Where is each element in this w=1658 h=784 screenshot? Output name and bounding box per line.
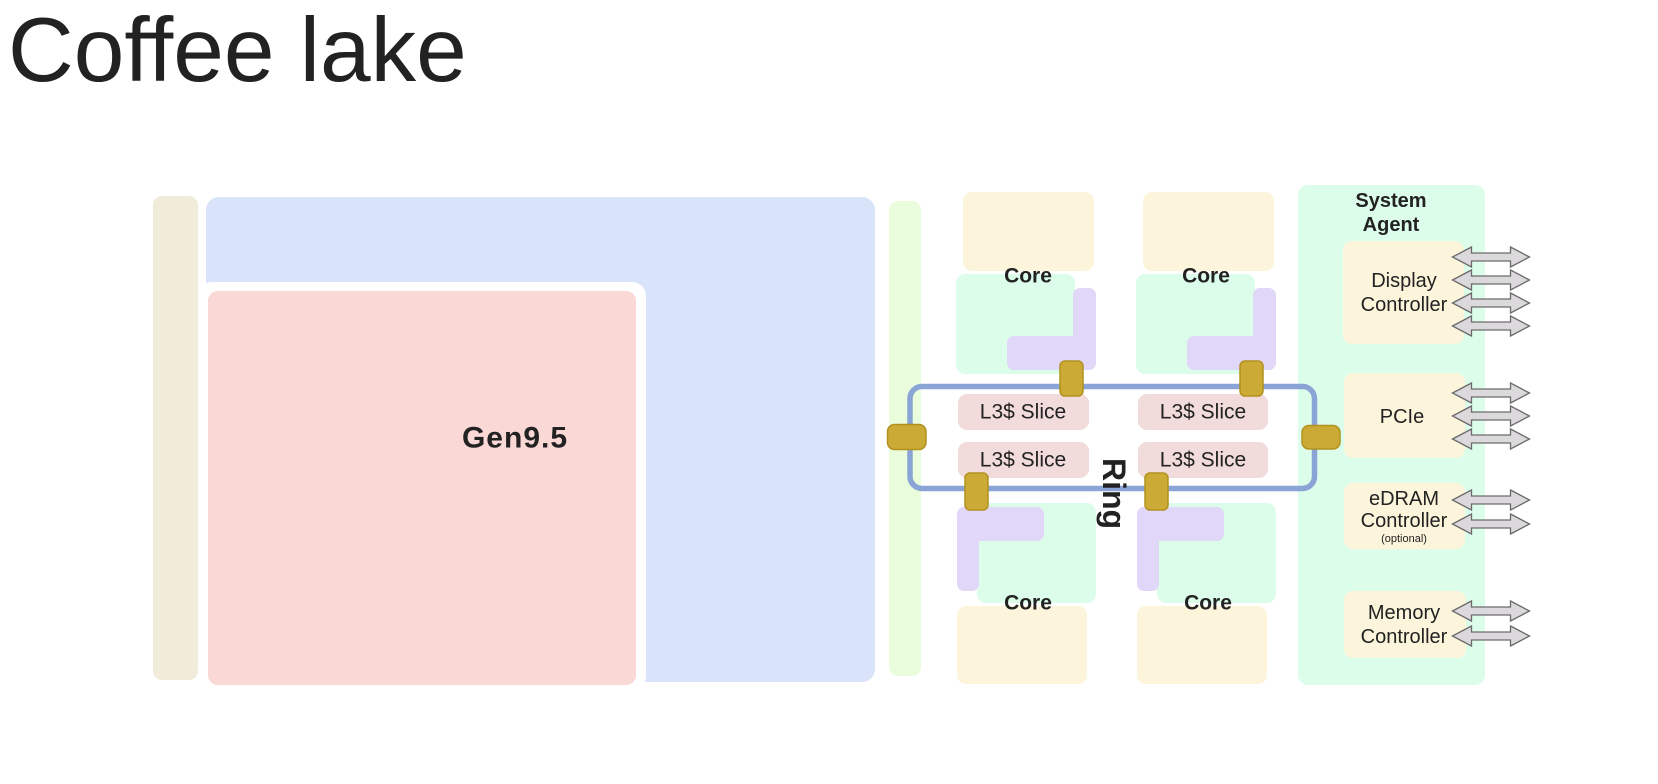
svg-text:Controller: Controller	[1361, 510, 1448, 532]
svg-text:L3$ Slice: L3$ Slice	[1160, 401, 1246, 424]
svg-text:Controller: Controller	[1361, 294, 1448, 316]
svg-text:L3$ Slice: L3$ Slice	[980, 401, 1066, 424]
svg-text:Core: Core	[1184, 592, 1232, 615]
svg-text:Core: Core	[1004, 592, 1052, 615]
svg-text:Core: Core	[1004, 265, 1052, 288]
svg-text:eDRAM: eDRAM	[1369, 488, 1439, 510]
svg-text:Display: Display	[1371, 270, 1437, 292]
svg-text:Core: Core	[1182, 265, 1230, 288]
svg-text:Gen9.5: Gen9.5	[462, 422, 568, 455]
svg-text:PCIe: PCIe	[1380, 406, 1424, 428]
svg-text:Memory: Memory	[1368, 602, 1440, 624]
svg-text:Ring: Ring	[1096, 458, 1132, 529]
svg-text:L3$ Slice: L3$ Slice	[980, 449, 1066, 472]
svg-text:L3$ Slice: L3$ Slice	[1160, 449, 1246, 472]
svg-text:Coffee lake: Coffee lake	[8, 0, 467, 101]
svg-text:Agent: Agent	[1363, 214, 1420, 236]
svg-text:Controller: Controller	[1361, 626, 1448, 648]
svg-text:System: System	[1355, 190, 1426, 212]
svg-text:(optional): (optional)	[1381, 533, 1427, 545]
